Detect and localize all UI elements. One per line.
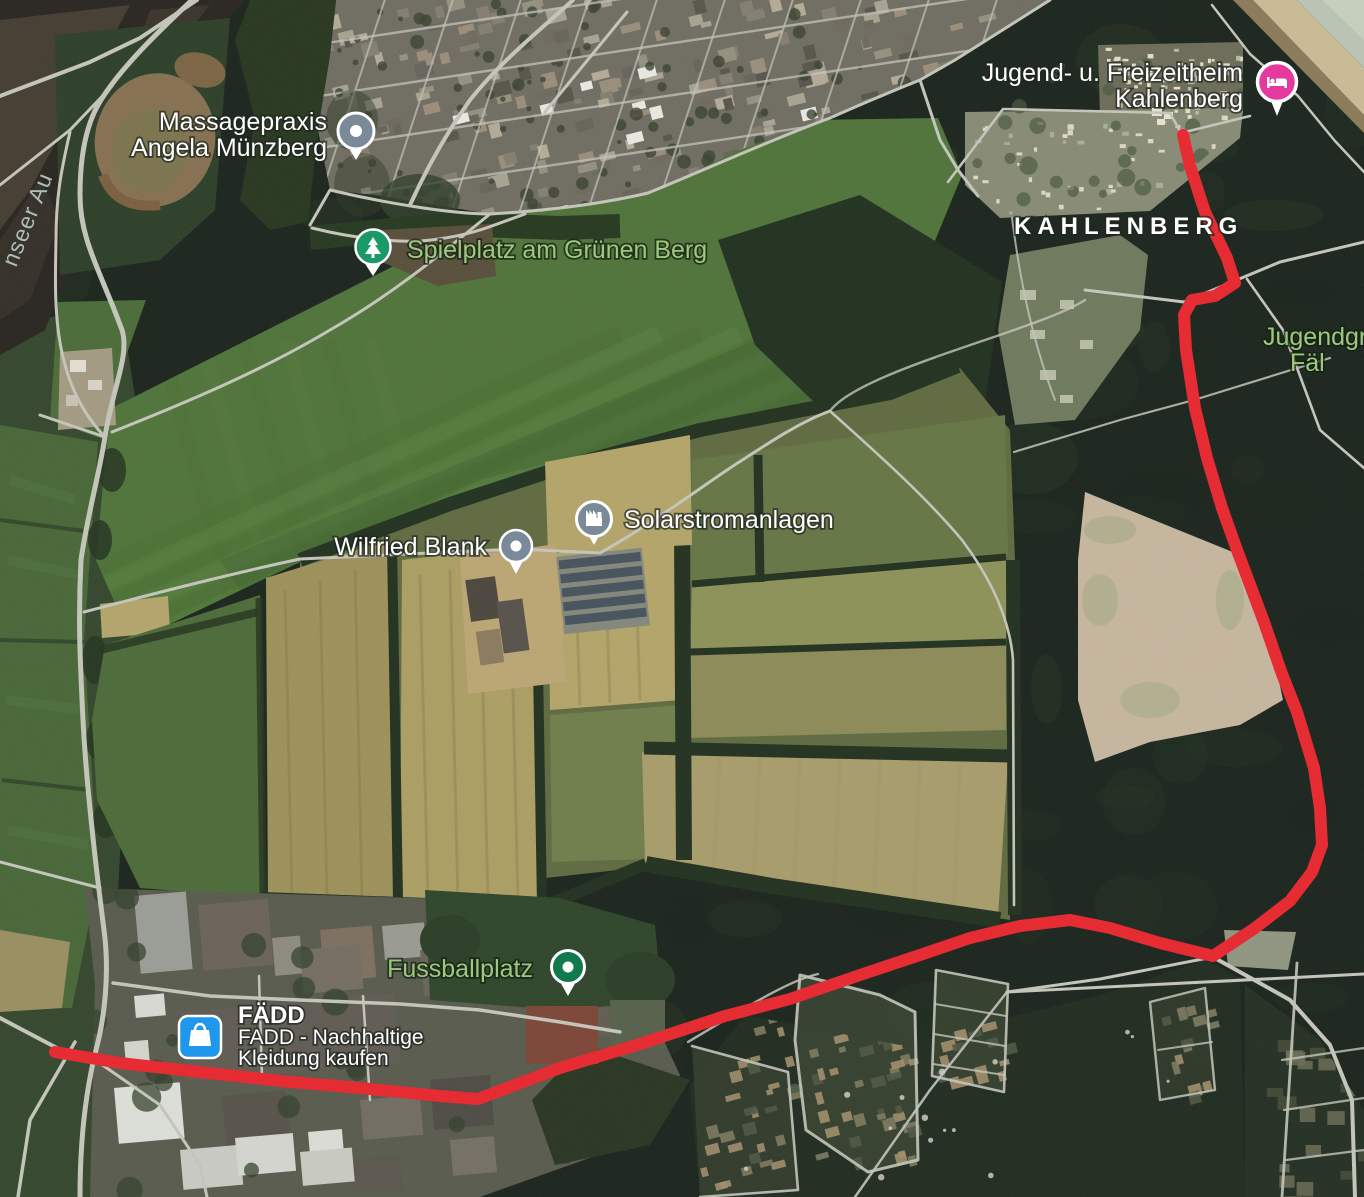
svg-text:Spielplatz am Grünen Berg: Spielplatz am Grünen Berg: [407, 236, 707, 264]
svg-text:Fäl: Fäl: [1290, 349, 1325, 377]
svg-text:Fussballplatz: Fussballplatz: [387, 955, 533, 983]
svg-text:Angela Münzberg: Angela Münzberg: [131, 134, 327, 162]
svg-text:KAHLENBERG: KAHLENBERG: [1014, 213, 1243, 240]
svg-text:Massagepraxis: Massagepraxis: [159, 108, 327, 136]
svg-text:Jugendgr: Jugendgr: [1263, 323, 1364, 351]
svg-text:Jugend- u. Freizeitheim: Jugend- u. Freizeitheim: [982, 59, 1243, 87]
svg-text:FADD - Nachhaltige: FADD - Nachhaltige: [238, 1026, 424, 1049]
svg-text:FÄDD: FÄDD: [238, 1002, 305, 1029]
svg-text:Kleidung kaufen: Kleidung kaufen: [238, 1047, 389, 1070]
svg-text:Solarstromanlagen: Solarstromanlagen: [624, 506, 834, 534]
svg-text:Wilfried Blank: Wilfried Blank: [334, 533, 487, 561]
svg-text:Kahlenberg: Kahlenberg: [1115, 85, 1243, 113]
